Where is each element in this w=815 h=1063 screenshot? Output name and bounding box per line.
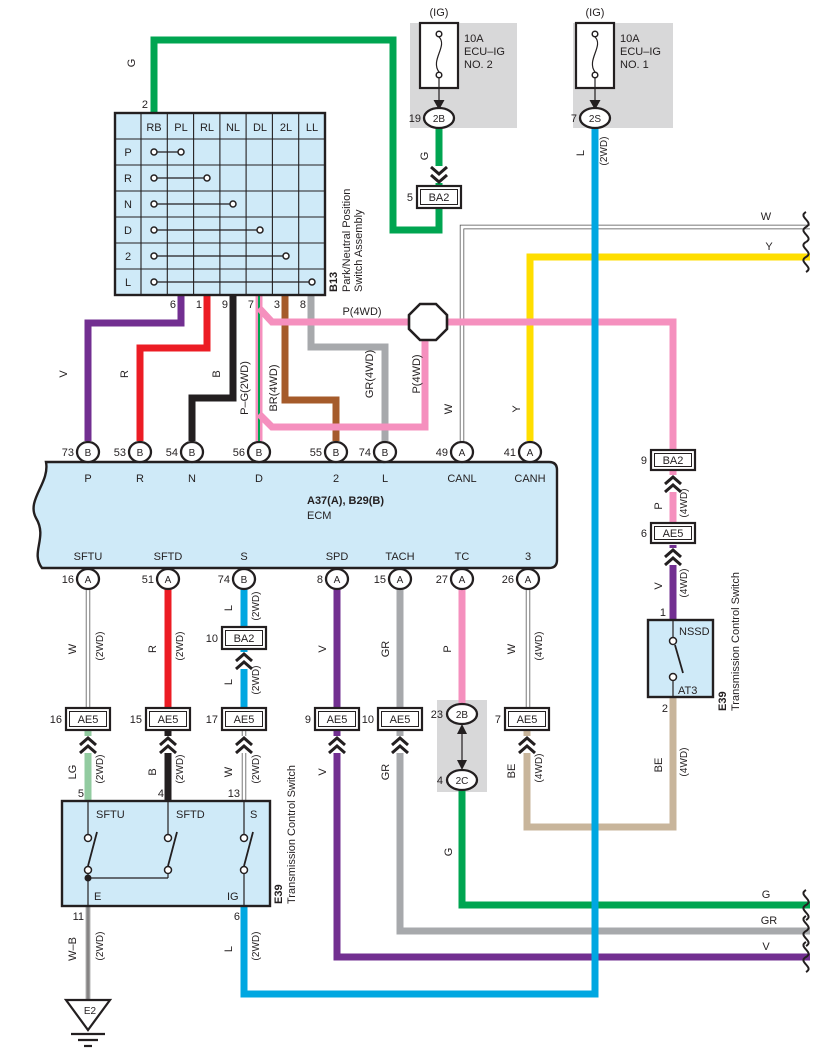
ecm-pin-num: 8 — [317, 574, 323, 586]
offpage-breaks — [803, 212, 808, 972]
wire-label-sub: (2WD) — [251, 592, 262, 621]
tcs-pin: 5 — [78, 788, 84, 800]
ecm-pin-num: 73 — [62, 447, 74, 459]
wire-label-can-w: W — [443, 403, 455, 414]
ecm-pin-code: B — [256, 448, 263, 459]
wire-label: BE — [653, 758, 665, 773]
pnp-name1: Park/Neutral Position — [341, 189, 353, 292]
wire-r-red — [140, 295, 207, 441]
ecm-pin-code: A — [459, 575, 466, 586]
nssd-pin: 2 — [662, 703, 668, 715]
wire-label-r: R — [119, 370, 131, 378]
wire-spd-v-lower — [337, 730, 810, 957]
conn-num: 7 — [495, 714, 501, 726]
wire-label: GR — [380, 641, 392, 658]
nssd-bottom-contact: AT3 — [678, 685, 697, 697]
pnp-row: P — [124, 147, 131, 159]
ecm-pin-label: TC — [455, 551, 470, 563]
wire-label-sub: (4WD) — [679, 748, 690, 777]
ecm-pin-num: 74 — [218, 574, 230, 586]
ecm-pin-code: A — [459, 448, 466, 459]
wire-label-gr4: GR(4WD) — [364, 350, 376, 398]
fuse-ecu-ig-no2 — [420, 23, 458, 128]
conn-num: 16 — [50, 714, 62, 726]
chevron-up-icon — [159, 736, 177, 753]
wire-label-sub: (2WD) — [95, 632, 106, 661]
fuse1-amp: 10A — [620, 33, 640, 45]
chevron-up-icon — [391, 736, 409, 753]
chevron-up-icon — [664, 548, 682, 565]
pnp-code: B13 — [328, 272, 340, 292]
pnp-col: RL — [200, 122, 214, 134]
ecm-pin-label: R — [136, 473, 144, 485]
chevron-up-icon — [328, 736, 346, 753]
tcs-contact: SFTU — [96, 809, 125, 821]
wire-label: V — [317, 645, 329, 653]
ecm-pin-num: 15 — [374, 574, 386, 586]
wire-label: L — [223, 605, 235, 611]
ecm-pin-label: CANL — [447, 473, 476, 485]
ecm-pin-code: A — [165, 575, 172, 586]
pnp-col: 2L — [280, 122, 292, 134]
conn-label: 2B — [456, 710, 469, 721]
pnp-row: N — [124, 199, 132, 211]
ecm-pin-code: A — [334, 575, 341, 586]
edge-label-g: G — [762, 889, 771, 901]
ecm-pin-num: 41 — [504, 447, 516, 459]
edge-label-y: Y — [765, 241, 773, 253]
chevron-down-icon — [430, 166, 448, 183]
conn-label: AE5 — [158, 714, 179, 726]
wire-label: L — [223, 946, 235, 952]
ecm-pin-label: TACH — [385, 551, 414, 563]
conn-label: AE5 — [234, 714, 255, 726]
ecm-pin-num: 53 — [114, 447, 126, 459]
ecm-pin-code: B — [333, 448, 340, 459]
conn-label: AE5 — [78, 714, 99, 726]
ecm-pin-num: 27 — [436, 574, 448, 586]
ecm-pin-num: 55 — [310, 447, 322, 459]
wire-label-sub: (2WD) — [251, 932, 262, 961]
conn-label: BA2 — [663, 455, 684, 467]
pnp-pin: 6 — [170, 299, 176, 311]
fuse1-tag: (IG) — [586, 7, 605, 19]
wire-b-black — [192, 295, 233, 441]
pnp-pin: 8 — [300, 299, 306, 311]
ecm-pin-label: SPD — [326, 551, 349, 563]
ecm-pin-num: 49 — [436, 447, 448, 459]
conn-num: 4 — [437, 775, 443, 787]
ecm-pin-label: 2 — [333, 473, 339, 485]
pnp-pin: 1 — [196, 299, 202, 311]
wire-label: R — [147, 645, 159, 653]
ecm-box — [34, 462, 557, 568]
conn-label: BA2 — [429, 192, 450, 204]
pnp-pin: 7 — [248, 299, 254, 311]
chevron-up-icon — [518, 736, 536, 753]
wire-label: V — [317, 768, 329, 776]
ecm-pin-code: A — [525, 575, 532, 586]
wire-label-sub: (4WD) — [679, 569, 690, 598]
ecm-pin-label: N — [188, 473, 196, 485]
conn-num: 5 — [407, 192, 413, 204]
pnp-top-wire: G — [126, 59, 138, 68]
wire-label: LG — [67, 765, 79, 780]
wire-label-sub: (4WD) — [679, 489, 690, 518]
conn-num: 9 — [641, 455, 647, 467]
tcs-name: Transmission Control Switch — [286, 765, 298, 904]
tcs-code: E39 — [273, 884, 285, 904]
ecm-pin-label: S — [240, 551, 247, 563]
chevron-up-icon — [235, 736, 253, 753]
wire-label-sub: (4WD) — [534, 632, 545, 661]
wire-v-purple — [88, 295, 181, 441]
fuse2-pin: 19 — [409, 113, 421, 125]
chevron-up-icon — [79, 736, 97, 753]
conn-num: 10 — [362, 714, 374, 726]
fuse1-num: NO. 1 — [620, 59, 649, 71]
conn-num: 17 — [206, 714, 218, 726]
wire-label-v: V — [58, 370, 70, 378]
wire-label: W — [223, 766, 235, 777]
nssd-code: E39 — [717, 691, 729, 711]
pnp-row: D — [124, 225, 132, 237]
ecm-code: A37(A), B29(B) — [307, 495, 384, 507]
ecm-pin-label: SFTU — [74, 551, 103, 563]
ecm-name: ECM — [307, 510, 331, 522]
fuse1-name: ECU–IG — [620, 46, 661, 58]
wire-label: W — [67, 643, 79, 654]
tcs-contact: SFTD — [176, 809, 205, 821]
wire-label-b: B — [211, 370, 223, 377]
fuse-ecu-ig-no1 — [576, 23, 614, 128]
wire-label: L — [223, 679, 235, 685]
wire-label-g-fuse: G — [419, 152, 431, 161]
wire-label-sub: (2WD) — [175, 755, 186, 784]
pnp-pin: 3 — [274, 299, 280, 311]
pnp-pin: 9 — [222, 299, 228, 311]
wire-label: P — [653, 502, 665, 509]
ground-code: E2 — [84, 1006, 97, 1017]
tcs-contact: E — [94, 891, 101, 903]
wire-label: BE — [506, 764, 518, 779]
pnp-row: 2 — [125, 251, 131, 263]
ecm-pin-label: P — [84, 473, 91, 485]
tcs-contact: IG — [227, 891, 239, 903]
tcs-pin: 4 — [158, 788, 164, 800]
conn-label: AE5 — [327, 714, 348, 726]
ecm-pin-label: D — [255, 473, 263, 485]
wire-label-p4v: P(4WD) — [411, 354, 423, 393]
tcs-pin: 13 — [228, 788, 240, 800]
wire-label-sub: (2WD) — [175, 632, 186, 661]
conn-label: AE5 — [517, 714, 538, 726]
ecm-pin-label: CANH — [514, 473, 545, 485]
wire-label-p4h: P(4WD) — [342, 306, 381, 318]
wire-label-l-fuse-sub: (2WD) — [599, 137, 610, 166]
wiring-diagram: (IG) 10A ECU–IG NO. 2 19 2B (IG) 10A ECU… — [0, 0, 815, 1063]
fuse2-amp: 10A — [464, 33, 484, 45]
ecm-pin-code: A — [397, 575, 404, 586]
conn-num: 9 — [305, 714, 311, 726]
pnp-row: L — [125, 277, 131, 289]
ecm-pin-code: B — [189, 448, 196, 459]
ecm-pin-num: 56 — [233, 447, 245, 459]
pnp-col: DL — [253, 122, 267, 134]
conn-num: 10 — [206, 633, 218, 645]
ecm-pin-num: 26 — [502, 574, 514, 586]
junction-octagon-icon — [409, 304, 447, 340]
ecm-pin-label: 3 — [525, 551, 531, 563]
wire-label-sub: (2WD) — [251, 755, 262, 784]
nssd-name: Transmission Control Switch — [730, 572, 742, 711]
tcs-contact: S — [250, 809, 257, 821]
pnp-col: NL — [226, 122, 240, 134]
wire-label-l-fuse: L — [575, 150, 587, 156]
ecm-pin-num: 54 — [166, 447, 178, 459]
pnp-col: LL — [306, 122, 318, 134]
nssd-top-contact: NSSD — [679, 626, 710, 638]
conn-label: BA2 — [234, 633, 255, 645]
wire-label-pg: P–G(2WD) — [239, 361, 251, 415]
pnp-col: PL — [174, 122, 187, 134]
fuse2-num: NO. 2 — [464, 59, 493, 71]
pnp-row: R — [124, 173, 132, 185]
ecm-pin-num: 16 — [62, 574, 74, 586]
edge-label-gr: GR — [761, 915, 778, 927]
fuse2-tag: (IG) — [430, 7, 449, 19]
fuse2-name: ECU–IG — [464, 46, 505, 58]
conn-label: 2C — [456, 776, 469, 787]
nssd-pin: 1 — [660, 607, 666, 619]
conn-label: AE5 — [390, 714, 411, 726]
conn-num: 15 — [130, 714, 142, 726]
wire-label-can-y: Y — [511, 405, 523, 413]
pnp-switch-assembly — [115, 113, 325, 295]
ecm-pin-code: A — [85, 575, 92, 586]
ecm-pin-label: SFTD — [154, 551, 183, 563]
ecm-pin-num: 51 — [142, 574, 154, 586]
pnp-name2: Switch Assembly — [353, 209, 365, 292]
wire-g-lower — [462, 790, 810, 905]
wire-label: G — [443, 848, 455, 857]
ecm-pin-num: 74 — [359, 447, 371, 459]
wire-label: W — [506, 643, 518, 654]
ecm-pin-code: A — [527, 448, 534, 459]
ecm-pin-label: L — [382, 473, 388, 485]
conn-label: AE5 — [663, 528, 684, 540]
conn-num: 6 — [641, 528, 647, 540]
wire-label: B — [147, 768, 159, 775]
pnp-top-pin: 2 — [142, 99, 148, 111]
junction-dot — [85, 875, 92, 882]
fuse2-conn: 2B — [433, 114, 446, 125]
wire-label: GR — [380, 764, 392, 781]
fuse1-conn: 2S — [589, 114, 602, 125]
wire-label: W–B — [67, 937, 79, 961]
wire-label-sub: (2WD) — [95, 932, 106, 961]
fuse1-pin: 7 — [571, 113, 577, 125]
tcs-pin: 11 — [73, 911, 84, 923]
ecm-pin-code: B — [241, 575, 248, 586]
ecm-pin-code: B — [137, 448, 144, 459]
wire-label: P — [442, 645, 454, 652]
edge-label-v: V — [762, 941, 770, 953]
pnp-col: RB — [146, 122, 161, 134]
conn-num: 23 — [431, 709, 443, 721]
ecm-pin-code: B — [85, 448, 92, 459]
wire-label-sub: (2WD) — [251, 666, 262, 695]
wire-label-sub: (2WD) — [95, 755, 106, 784]
wire-label-br: BR(4WD) — [268, 364, 280, 411]
wiring-diagram-page: (IG) 10A ECU–IG NO. 2 19 2B (IG) 10A ECU… — [0, 0, 815, 1063]
wire-label-sub: (4WD) — [534, 754, 545, 783]
wire-label: V — [653, 582, 665, 590]
tcs-pin: 6 — [234, 911, 240, 923]
ecm-pin-code: B — [382, 448, 389, 459]
edge-label-w: W — [761, 211, 772, 223]
